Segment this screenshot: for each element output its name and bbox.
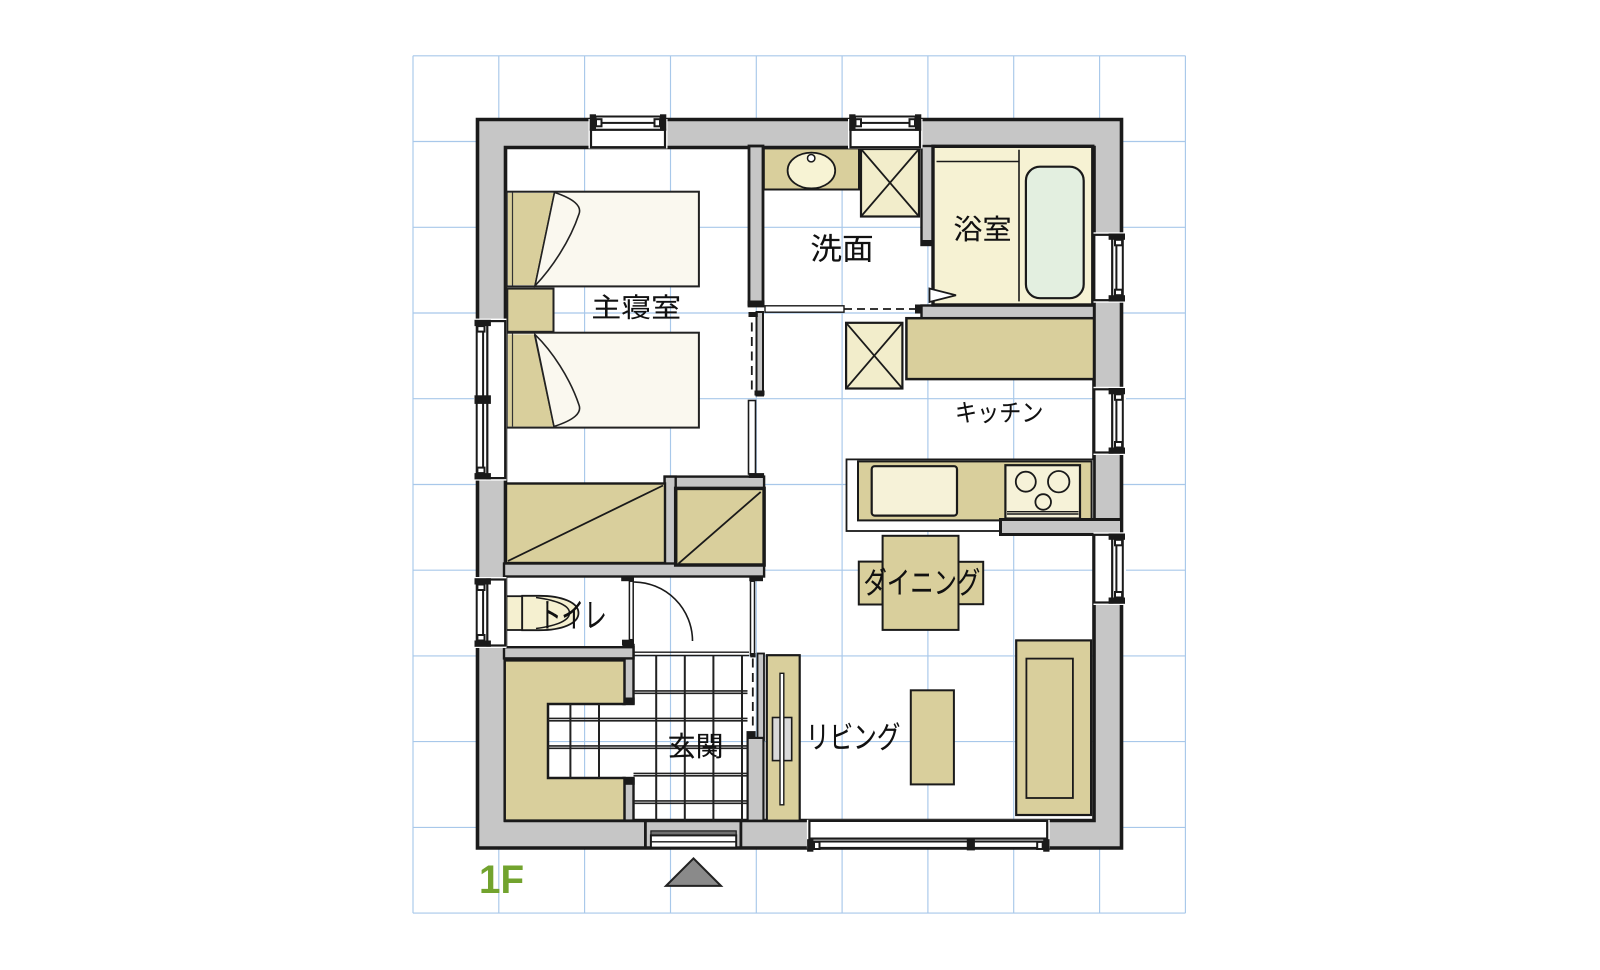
svg-text:1F: 1F xyxy=(479,858,524,902)
